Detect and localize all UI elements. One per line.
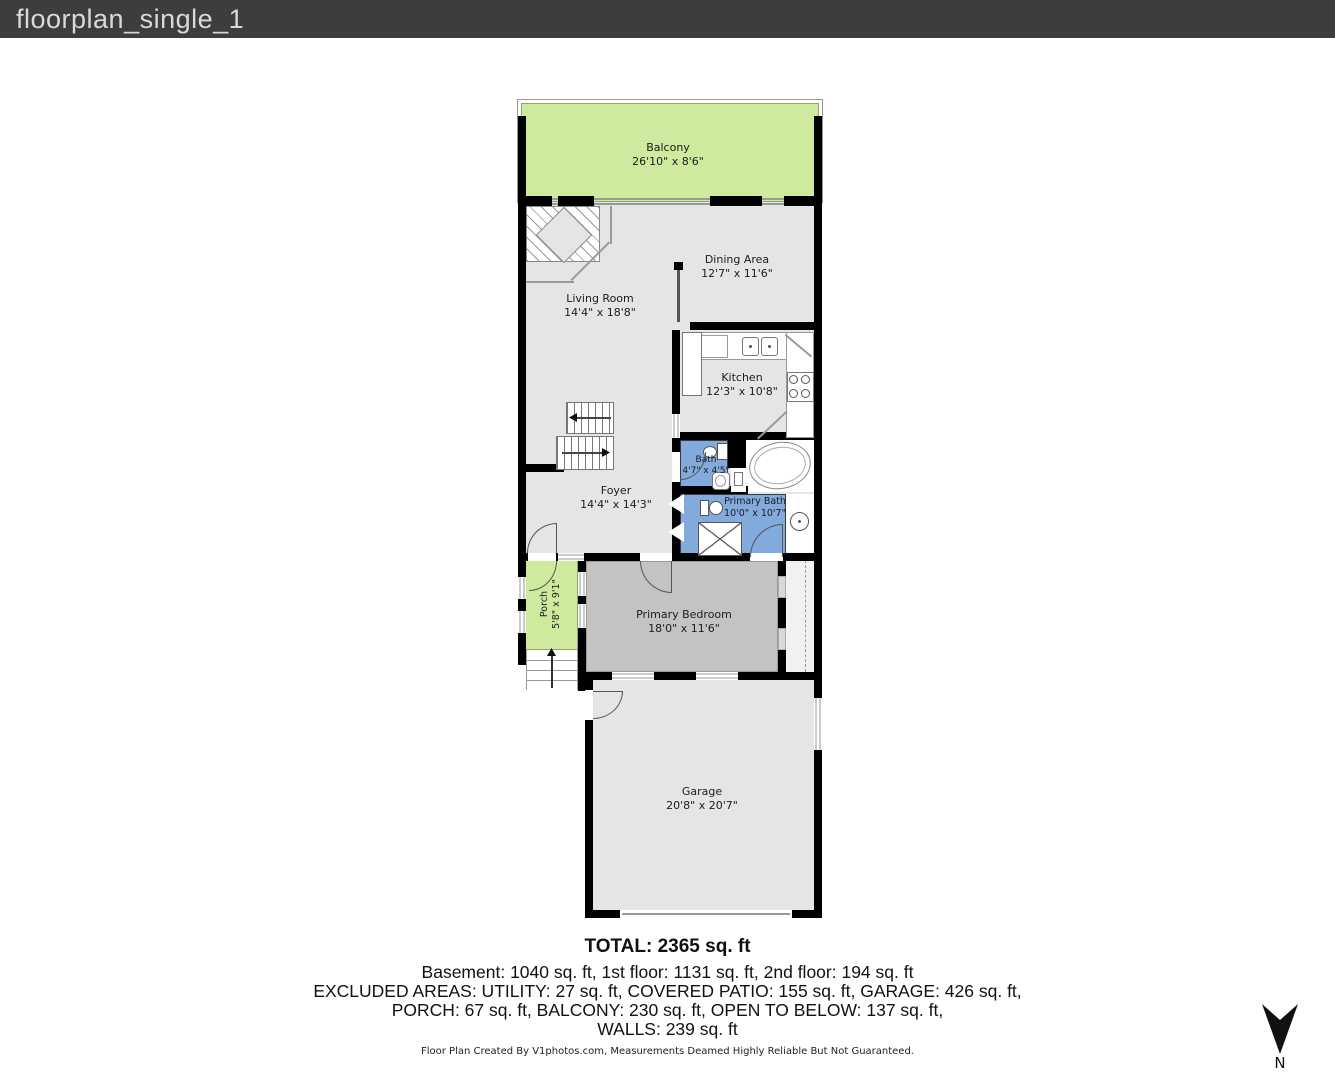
sink-drain: [749, 345, 752, 348]
stair-arrow-stem: [562, 452, 602, 454]
closet-slider: [778, 628, 786, 650]
stair-arrow-stem: [577, 417, 611, 419]
closet-rod-dashed-line: [805, 560, 806, 672]
partial-wall: [677, 264, 680, 322]
door-opening: [640, 553, 672, 561]
room-label-porch: Porch 5'8" x 9'1": [539, 579, 563, 629]
credit-line: Floor Plan Created By V1photos.com, Meas…: [0, 1046, 1335, 1057]
wall: [674, 262, 683, 270]
window: [612, 672, 654, 680]
door-opening: [672, 452, 680, 482]
door-opening: [528, 553, 556, 561]
total-area: TOTAL: 2365 sq. ft: [0, 936, 1335, 958]
room-label-primary-bath: Primary Bath 10'0" x 10'7": [724, 496, 786, 520]
room-label-foyer: Foyer 14'4" x 14'3": [580, 484, 652, 512]
summary-line: PORCH: 67 sq. ft, BALCONY: 230 sq. ft, O…: [0, 1001, 1335, 1019]
window: [578, 572, 586, 596]
compass-north-label: N: [1274, 1054, 1285, 1072]
entry-arrow-stem: [551, 654, 553, 688]
wall: [814, 116, 822, 202]
wall: [518, 116, 526, 202]
wall: [728, 440, 746, 468]
wall: [690, 322, 814, 330]
room-label-garage: Garage 20'8" x 20'7": [666, 785, 738, 813]
window: [672, 414, 680, 438]
toilet-bowl: [709, 501, 723, 515]
window: [696, 672, 738, 680]
wall: [672, 330, 680, 554]
stove-burner: [801, 389, 810, 398]
summary-line: Basement: 1040 sq. ft, 1st floor: 1131 s…: [0, 963, 1335, 981]
hearth-line: [610, 206, 612, 244]
niche-fixture: [734, 472, 743, 486]
window: [814, 698, 822, 750]
closet-strip: [786, 558, 814, 672]
refrigerator: [682, 332, 702, 396]
room-label-balcony: Balcony 26'10" x 8'6": [632, 141, 704, 169]
wall: [710, 196, 762, 206]
room-label-bath: Bath 4'7" x 4'5": [682, 455, 729, 477]
area-summary: TOTAL: 2365 sq. ft Basement: 1040 sq. ft…: [0, 936, 1335, 1039]
stove-burner: [789, 389, 798, 398]
wall: [558, 196, 594, 206]
stove-burner: [789, 375, 798, 384]
window: [518, 577, 526, 599]
room-label-primary-bedroom: Primary Bedroom 18'0" x 11'6": [636, 608, 732, 636]
closet-slider: [778, 576, 786, 598]
window: [558, 553, 584, 561]
room-label-living: Living Room 14'4" x 18'8": [564, 292, 636, 320]
door-opening: [585, 690, 593, 720]
room-label-dining: Dining Area 12'7" x 11'6": [701, 253, 773, 281]
vanity-sink-drain: [798, 520, 801, 523]
sink-drain: [768, 345, 771, 348]
window: [518, 611, 526, 633]
floor-plan: Balcony 26'10" x 8'6" Living Room 14'4" …: [0, 0, 1335, 1080]
shower: [698, 522, 742, 556]
wall: [518, 647, 526, 665]
summary-line: WALLS: 239 sq. ft: [0, 1020, 1335, 1038]
garage-door-line: [622, 913, 790, 915]
page: floorplan_single_1: [0, 0, 1335, 1080]
window: [578, 604, 586, 628]
stove-burner: [801, 375, 810, 384]
wall: [518, 202, 526, 562]
toilet: [700, 500, 709, 516]
summary-line: EXCLUDED AREAS: UTILITY: 27 sq. ft, COVE…: [0, 982, 1335, 1000]
room-label-kitchen: Kitchen 12'3" x 10'8": [706, 371, 778, 399]
wall: [518, 561, 526, 648]
hearth-line: [526, 281, 574, 283]
